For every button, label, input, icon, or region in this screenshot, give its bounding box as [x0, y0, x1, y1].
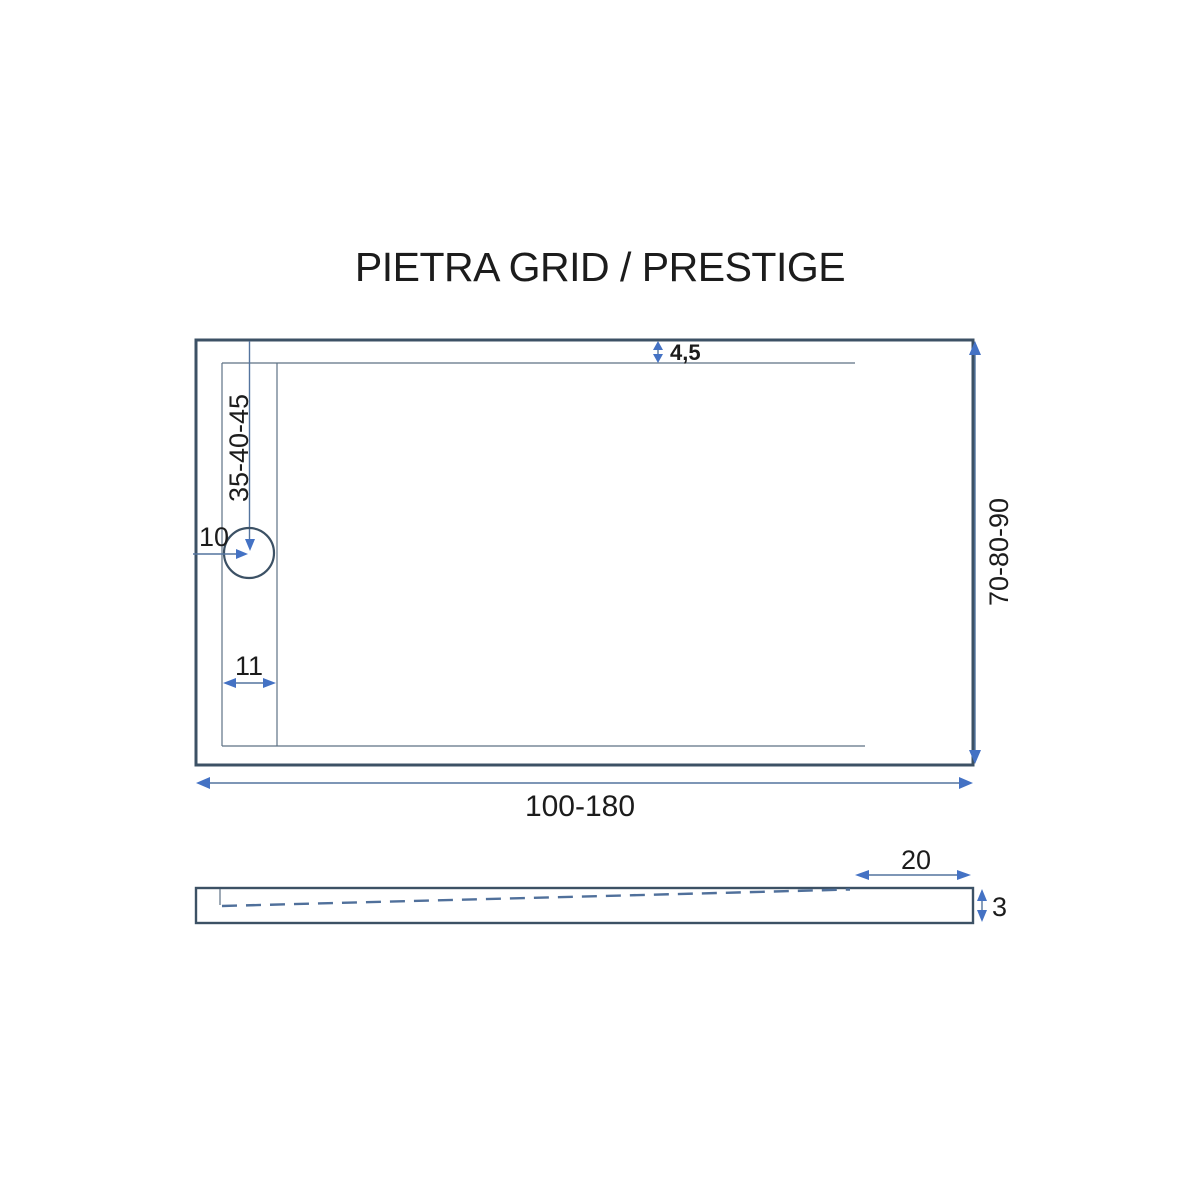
overall-depth-label: 70-80-90 — [984, 498, 1014, 606]
overall-width-label: 100-180 — [525, 790, 635, 823]
edge-thickness-dimension: 3 — [977, 889, 1007, 922]
flat-edge-label: 20 — [901, 845, 931, 875]
arrow-left-icon — [855, 870, 869, 880]
arrow-down-icon — [977, 910, 987, 922]
diagram-page: PIETRA GRID / PRESTIGE 4,5 35-40-45 — [0, 0, 1200, 1200]
overall-width-dimension: 100-180 — [196, 777, 973, 823]
technical-drawing: 4,5 35-40-45 10 11 — [0, 0, 1200, 1200]
drain-offset-top-label: 35-40-45 — [224, 394, 254, 502]
plan-view: 4,5 35-40-45 10 11 — [193, 340, 1014, 823]
arrow-up-icon — [977, 889, 987, 901]
edge-thickness-label: 3 — [992, 892, 1007, 922]
arrow-right-icon — [957, 870, 971, 880]
drain-offset-left-label: 10 — [199, 522, 229, 552]
arrow-left-icon — [196, 777, 210, 789]
overall-depth-dimension: 70-80-90 — [969, 341, 1014, 764]
drain-strip-label: 11 — [235, 651, 263, 681]
profile-outline — [196, 888, 973, 923]
border-offset-label: 4,5 — [670, 340, 701, 365]
flat-edge-dimension: 20 — [855, 845, 971, 880]
tray-outline — [196, 340, 973, 765]
arrow-right-icon — [959, 777, 973, 789]
side-view: 20 3 — [196, 845, 1007, 923]
